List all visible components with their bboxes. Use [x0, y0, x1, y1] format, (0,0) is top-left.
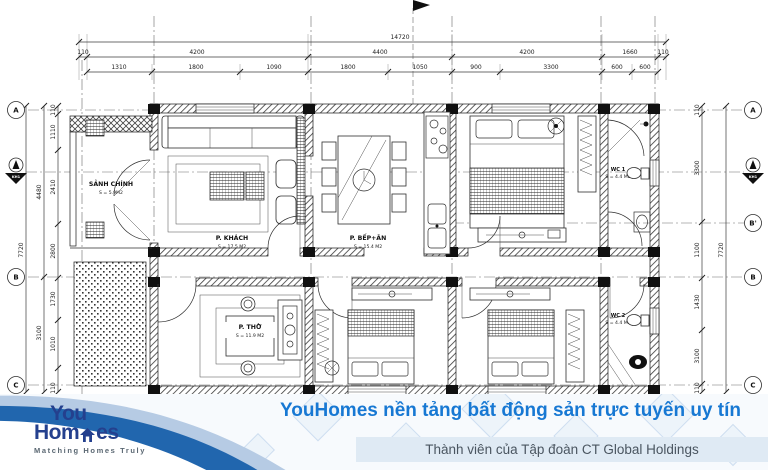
room-wc1: WC 1 S = 4.4 M2	[605, 120, 650, 246]
svg-text:1100: 1100	[694, 242, 701, 257]
washbasin	[629, 355, 647, 369]
section-marker-left: KH1	[5, 158, 27, 184]
logo-text-hom: Hom	[34, 422, 79, 443]
svg-text:3100: 3100	[694, 348, 701, 363]
svg-text:2800: 2800	[50, 243, 57, 258]
svg-text:600: 600	[611, 64, 623, 71]
svg-text:110: 110	[694, 382, 701, 394]
svg-text:B: B	[13, 274, 18, 282]
logo-text-es: es	[96, 422, 118, 443]
svg-text:4200: 4200	[189, 49, 204, 56]
svg-text:1800: 1800	[340, 64, 355, 71]
svg-text:WC 1: WC 1	[611, 167, 626, 173]
armchair	[276, 196, 296, 224]
svg-text:1110: 1110	[50, 124, 57, 139]
altar-cabinet	[278, 300, 302, 360]
svg-text:4400: 4400	[372, 49, 387, 56]
tv-cabinet	[297, 118, 305, 224]
banner-subtitle-strip: Thành viên của Tập đoàn CT Global Holdin…	[356, 437, 768, 462]
svg-text:C: C	[13, 382, 18, 390]
svg-text:14720: 14720	[390, 34, 409, 41]
svg-text:A: A	[750, 107, 756, 115]
svg-text:1010: 1010	[50, 336, 57, 351]
dimension-right: 110 3300 1100 1430 3100 110 7720	[694, 103, 729, 395]
sofa	[168, 116, 296, 128]
room-living: P. KHÁCH S = 17.5 M2	[162, 116, 305, 250]
wardrobe	[578, 116, 596, 192]
svg-text:S = 4.4 M2: S = 4.4 M2	[605, 174, 630, 180]
svg-text:3300: 3300	[543, 64, 558, 71]
brand-banner: You Hom es Matching Homes Truly YouHomes…	[0, 394, 768, 470]
wardrobe	[566, 310, 584, 382]
section-flag	[413, 0, 430, 11]
svg-text:900: 900	[470, 64, 482, 71]
svg-text:7720: 7720	[718, 242, 725, 257]
dimension-top: 14720 110 4200 4400 4200 1660 110 1310 1…	[76, 34, 669, 80]
svg-text:C: C	[750, 382, 755, 390]
dimension-left: 7720 4480 3100 110 1110 2410 2800 1730 1…	[18, 103, 61, 395]
svg-text:4200: 4200	[519, 49, 534, 56]
svg-text:S = 15.4 M2: S = 15.4 M2	[354, 244, 382, 250]
blanket	[348, 310, 414, 336]
youhomes-logo: You Hom es Matching Homes Truly	[34, 403, 146, 455]
svg-text:110: 110	[50, 382, 57, 394]
toilet	[627, 315, 649, 327]
svg-text:2410: 2410	[50, 179, 57, 194]
svg-text:SẢNH CHÍNH: SẢNH CHÍNH	[89, 178, 133, 188]
house-icon	[80, 428, 95, 442]
svg-text:WC 2: WC 2	[611, 313, 626, 319]
svg-text:3300: 3300	[694, 160, 701, 175]
svg-text:KH1: KH1	[12, 175, 21, 179]
svg-text:B: B	[750, 274, 755, 282]
svg-text:3100: 3100	[36, 325, 43, 340]
floor-plan: 14720 110 4200 4400 4200 1660 110 1310 1…	[0, 0, 768, 400]
washbasin	[634, 212, 650, 232]
shower	[608, 120, 644, 156]
svg-text:1310: 1310	[111, 64, 126, 71]
coffee-table	[210, 172, 244, 200]
svg-text:1090: 1090	[266, 64, 281, 71]
room-tho: P. THỜ S = 11.9 M2	[158, 284, 302, 377]
blanket	[470, 168, 564, 214]
svg-text:110: 110	[694, 104, 701, 116]
section-marker-right: KH1	[742, 158, 764, 184]
room-wc2: WC 2 S = 4.4 M2	[605, 284, 649, 386]
svg-text:7720: 7720	[18, 242, 25, 257]
room-bedroom-1	[468, 116, 596, 248]
svg-text:B': B'	[749, 220, 756, 228]
room-bedroom-3	[462, 284, 584, 384]
svg-text:1730: 1730	[50, 291, 57, 306]
logo-tagline: Matching Homes Truly	[34, 447, 146, 455]
room-bedroom-2	[315, 284, 432, 384]
svg-text:110: 110	[657, 49, 669, 56]
banner-slogan: YouHomes nền tảng bất động sản trực tuyế…	[258, 400, 763, 422]
patio	[74, 262, 146, 386]
svg-text:1050: 1050	[412, 64, 427, 71]
svg-text:110: 110	[50, 104, 57, 116]
svg-text:S = 17.5 M2: S = 17.5 M2	[218, 244, 246, 250]
svg-text:S = 5.9M2: S = 5.9M2	[99, 190, 123, 196]
room-porch: SẢNH CHÍNH S = 5.9M2	[70, 116, 152, 248]
blanket	[488, 310, 554, 336]
svg-text:S = 11.9 M2: S = 11.9 M2	[236, 333, 264, 339]
toilet	[627, 168, 649, 180]
svg-text:4480: 4480	[36, 184, 43, 199]
svg-text:1430: 1430	[694, 294, 701, 309]
svg-text:A: A	[13, 107, 19, 115]
door-arc	[608, 212, 642, 246]
wardrobe	[315, 310, 333, 382]
room-kitchen: P. BẾP+ĂN S = 15.4 M2	[322, 112, 450, 254]
door-arc	[158, 284, 196, 322]
svg-text:P. BẾP+ĂN: P. BẾP+ĂN	[350, 232, 387, 242]
svg-text:P. KHÁCH: P. KHÁCH	[216, 233, 248, 242]
svg-text:110: 110	[77, 49, 89, 56]
armchair	[276, 160, 296, 188]
screenshot-root: 14720 110 4200 4400 4200 1660 110 1310 1…	[0, 0, 768, 470]
svg-text:600: 600	[639, 64, 651, 71]
svg-text:1660: 1660	[622, 49, 637, 56]
banner-subtitle: Thành viên của Tập đoàn CT Global Holdin…	[425, 442, 698, 457]
svg-text:1800: 1800	[188, 64, 203, 71]
svg-text:KH1: KH1	[749, 175, 758, 179]
svg-text:P. THỜ: P. THỜ	[239, 322, 262, 331]
